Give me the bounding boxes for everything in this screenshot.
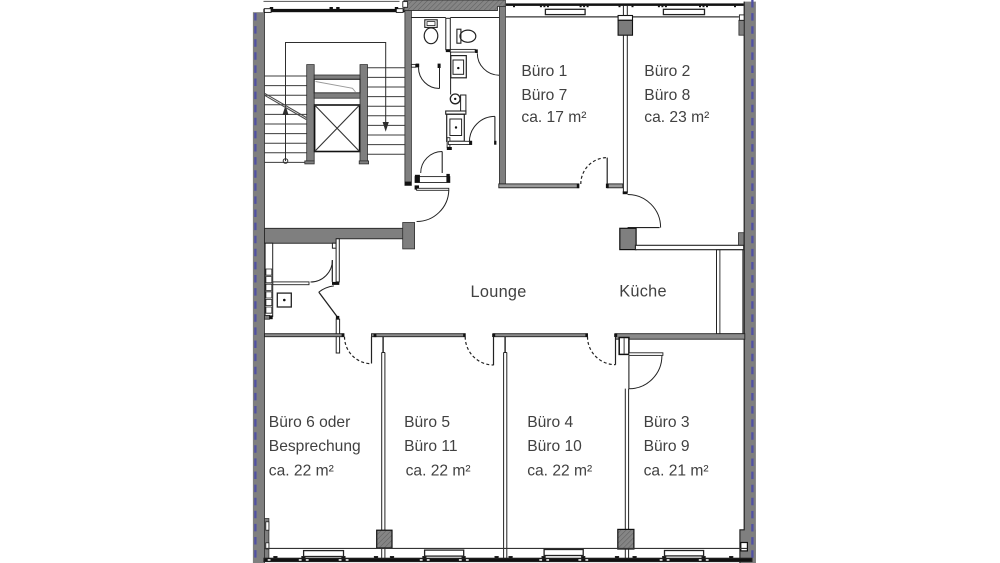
svg-text:ca. 22 m²: ca. 22 m² — [269, 462, 334, 479]
svg-text:Büro 8: Büro 8 — [644, 87, 690, 104]
svg-text:Büro 2: Büro 2 — [644, 63, 690, 80]
svg-text:Büro 4: Büro 4 — [527, 414, 573, 431]
svg-text:Büro 7: Büro 7 — [521, 87, 567, 104]
svg-text:ca. 22 m²: ca. 22 m² — [527, 462, 592, 479]
svg-text:Büro 1: Büro 1 — [521, 63, 567, 80]
svg-text:Büro 9: Büro 9 — [644, 438, 690, 455]
svg-text:Küche: Küche — [619, 283, 667, 301]
svg-text:ca. 17 m²: ca. 17 m² — [521, 109, 586, 126]
svg-text:Besprechung: Besprechung — [269, 438, 361, 455]
svg-text:Büro 6 oder: Büro 6 oder — [269, 414, 351, 431]
svg-text:Lounge: Lounge — [471, 283, 527, 301]
svg-text:ca. 23 m²: ca. 23 m² — [644, 109, 709, 126]
svg-text:ca. 22 m²: ca. 22 m² — [406, 462, 471, 479]
svg-text:Büro 10: Büro 10 — [527, 438, 582, 455]
svg-text:Büro 3: Büro 3 — [644, 414, 690, 431]
svg-text:ca. 21 m²: ca. 21 m² — [644, 462, 709, 479]
svg-text:Büro 11: Büro 11 — [404, 438, 457, 455]
svg-text:Büro 5: Büro 5 — [404, 414, 450, 431]
